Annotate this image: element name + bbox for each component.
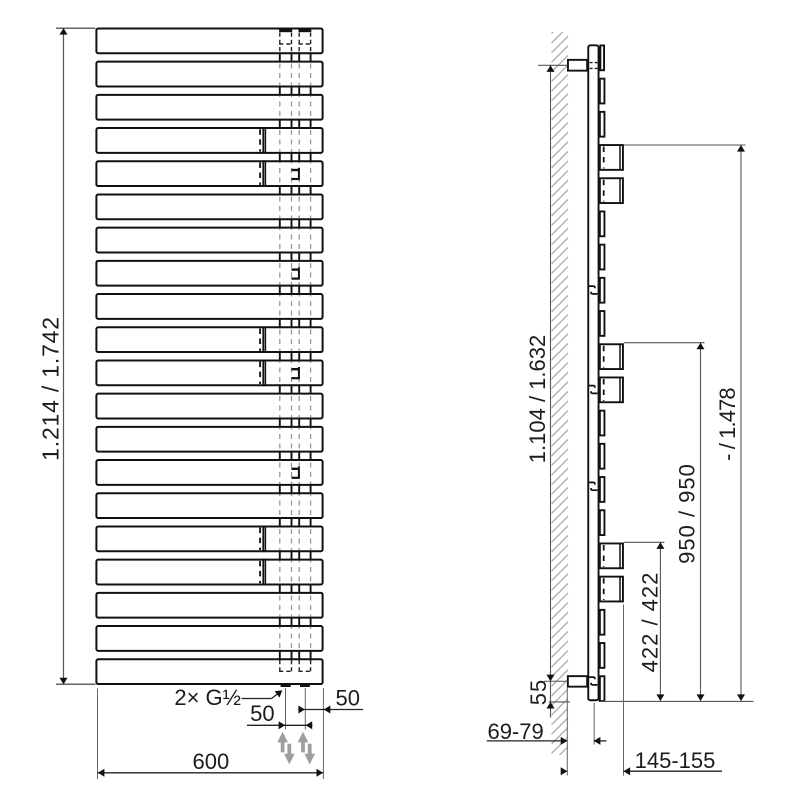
svg-text:50: 50 — [335, 685, 359, 710]
svg-text:55: 55 — [526, 679, 551, 705]
svg-text:69-79: 69-79 — [487, 719, 543, 744]
svg-text:145-155: 145-155 — [635, 748, 716, 773]
svg-text:1.214 / 1.742: 1.214 / 1.742 — [38, 316, 64, 461]
svg-text:2× G½: 2× G½ — [174, 685, 241, 710]
svg-text:950 / 950: 950 / 950 — [675, 463, 700, 564]
svg-text:- / 1.478: - / 1.478 — [715, 388, 740, 461]
svg-text:1.104 / 1.632: 1.104 / 1.632 — [525, 335, 550, 463]
svg-text:50: 50 — [250, 701, 274, 726]
svg-text:422 / 422: 422 / 422 — [638, 572, 663, 673]
svg-text:600: 600 — [193, 749, 230, 774]
